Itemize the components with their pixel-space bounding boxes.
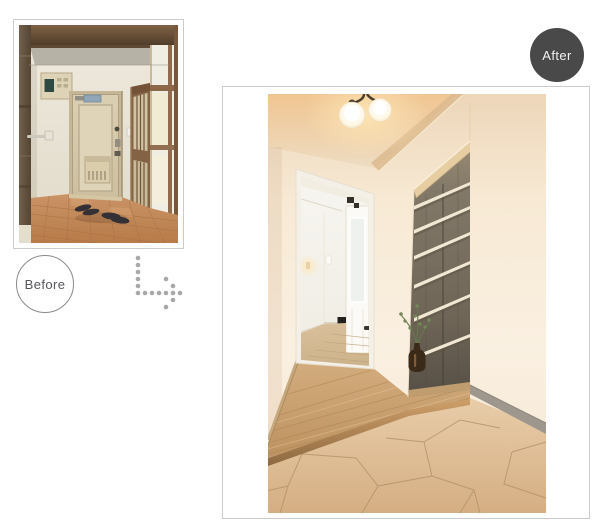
after-photo [268,94,546,513]
after-hall-glass-door [346,197,370,354]
before-photo [19,25,178,243]
after-badge: After [530,28,584,82]
after-badge-label: After [542,48,571,63]
before-to-after-arrow-icon [132,252,188,316]
after-hall-switch [326,256,331,264]
before-badge-label: Before [25,277,66,292]
after-hallway-opening [296,169,374,369]
after-photo-card [222,86,590,519]
page: Before After [0,0,600,528]
before-badge: Before [16,255,74,313]
before-photo-card [13,19,184,249]
